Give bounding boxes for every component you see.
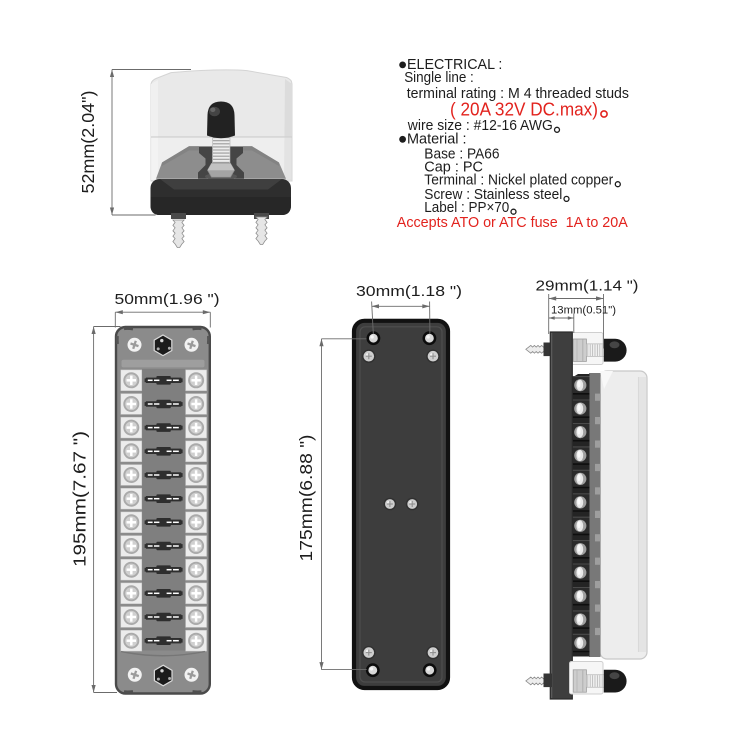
svg-text:13mm(0.51"): 13mm(0.51") xyxy=(551,304,616,316)
svg-text:30mm(1.18 "): 30mm(1.18 ") xyxy=(356,283,462,300)
svg-text:( 20A 32V DC.max): ( 20A 32V DC.max) xyxy=(450,98,598,119)
svg-text:195mm(7.67 "): 195mm(7.67 ") xyxy=(69,431,89,567)
svg-text:52mm(2.04"): 52mm(2.04") xyxy=(78,91,98,194)
svg-text:50mm(1.96 "): 50mm(1.96 ") xyxy=(115,291,220,308)
svg-text:29mm(1.14 "): 29mm(1.14 ") xyxy=(536,278,639,295)
svg-text:Accepts ATO or ATC fuse 1A to: Accepts ATO or ATC fuse 1A to 20A xyxy=(397,214,628,231)
svg-text:Terminal : Nickel plated coppe: Terminal : Nickel plated copper xyxy=(424,172,613,188)
svg-text:175mm(6.88 "): 175mm(6.88 ") xyxy=(296,435,316,562)
svg-text:Single line :: Single line : xyxy=(404,70,474,86)
svg-text:Material :: Material : xyxy=(407,131,467,147)
